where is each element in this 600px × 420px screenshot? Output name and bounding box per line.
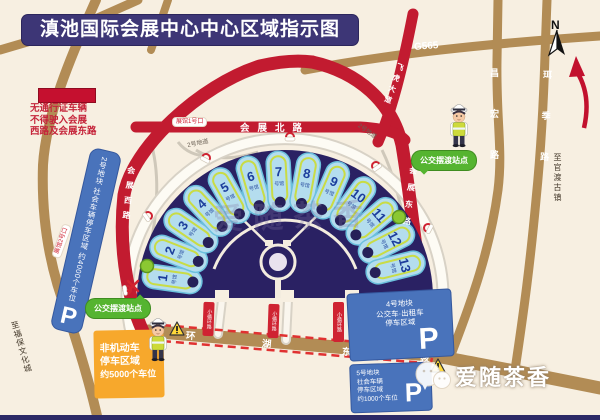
road-label-g565: G565 (414, 40, 439, 53)
shuttle-stop-bubble-left: 公交摆渡站点 (86, 299, 150, 318)
parking-plot2-p-icon: P (58, 302, 80, 333)
road-label-huizhan-north: 会展北路 (240, 120, 310, 134)
shuttle-stop-bubble-right: 公交摆渡站点 (412, 151, 476, 170)
mini-road-plate-2: 小循环路 (267, 304, 279, 338)
nonmotor-parking-box: 非机动车 停车区域 约5000个车位 (93, 329, 164, 398)
legend-line3: 西路及会展东路 (30, 126, 97, 138)
road-label-to-guandu: 至官渡古镇 (552, 153, 563, 203)
parking-plot4-p-icon: P (418, 322, 440, 357)
bottom-border-bar (0, 415, 600, 420)
mini-road-plate-1: 小循环路 (202, 302, 214, 336)
legend-line2: 不得驶入会展 (30, 115, 97, 127)
watermark-bottom: 爱随茶香 (455, 360, 551, 392)
parking-plot5: 5号地块 社会车辆 停车区域 约1000个车位 P (349, 362, 433, 414)
svg-text:号馆: 号馆 (274, 180, 284, 188)
parking-plot4: 4号地块 公交车·出租车 停车区域 P (346, 288, 454, 361)
nonmotor-line1: 非机动车 (100, 341, 164, 355)
svg-text:号馆: 号馆 (170, 274, 178, 285)
compass-icon (546, 29, 568, 57)
legend-line1: 无通行证车辆 (30, 103, 97, 115)
road-label-huanhu-1: 环 (185, 328, 196, 343)
mini-road-plate-3: 小循环路 (333, 302, 344, 342)
hall-gate1-label: 展馆1号口 (172, 117, 207, 127)
page-title: 滇池国际会展中心中心区域指示图 (22, 15, 358, 45)
svg-text:7: 7 (275, 164, 283, 179)
shuttle-stop-label: 公交摆渡站点 (420, 156, 468, 165)
legend-text: 无通行证车辆 不得驶入会展 西路及会展东路 (30, 103, 97, 138)
map-page: { "title": "滇池国际会展中心中心区域指示图", "legend": … (0, 0, 600, 420)
legend-no-pass-bar (38, 88, 96, 103)
road-label-changhong: 昌宏路 (488, 68, 501, 191)
shuttle-stop-label: 公交摆渡站点 (94, 304, 142, 313)
nonmotor-line3: 约5000个车位 (100, 367, 164, 381)
nonmotor-line2: 停车区域 (100, 354, 164, 368)
watermark-center: 爱随茶香 (212, 189, 373, 239)
parking-plot5-p-icon: P (404, 377, 422, 409)
